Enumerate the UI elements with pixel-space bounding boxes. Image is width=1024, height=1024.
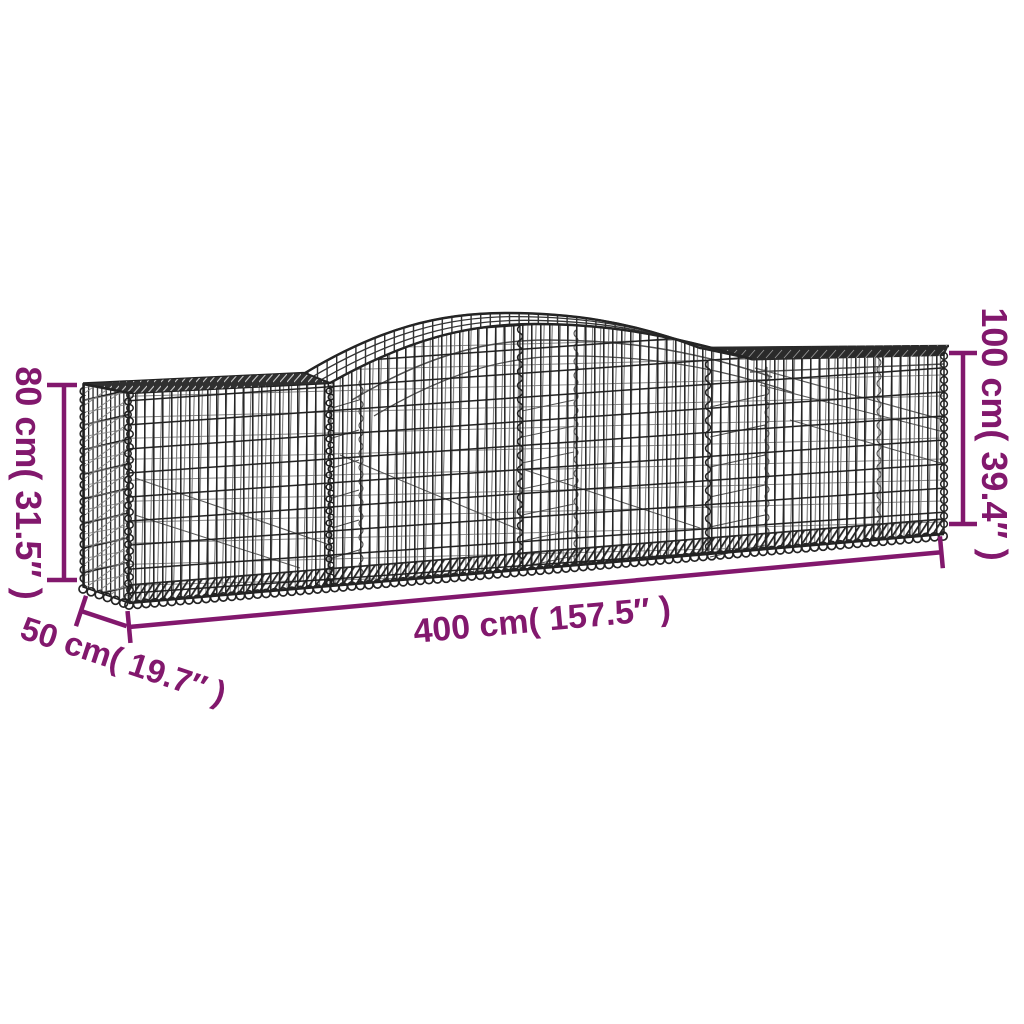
svg-text:80 cm( 31.5″ ): 80 cm( 31.5″ ) xyxy=(8,366,49,599)
svg-text:100 cm( 39.4″ ): 100 cm( 39.4″ ) xyxy=(974,307,1015,560)
